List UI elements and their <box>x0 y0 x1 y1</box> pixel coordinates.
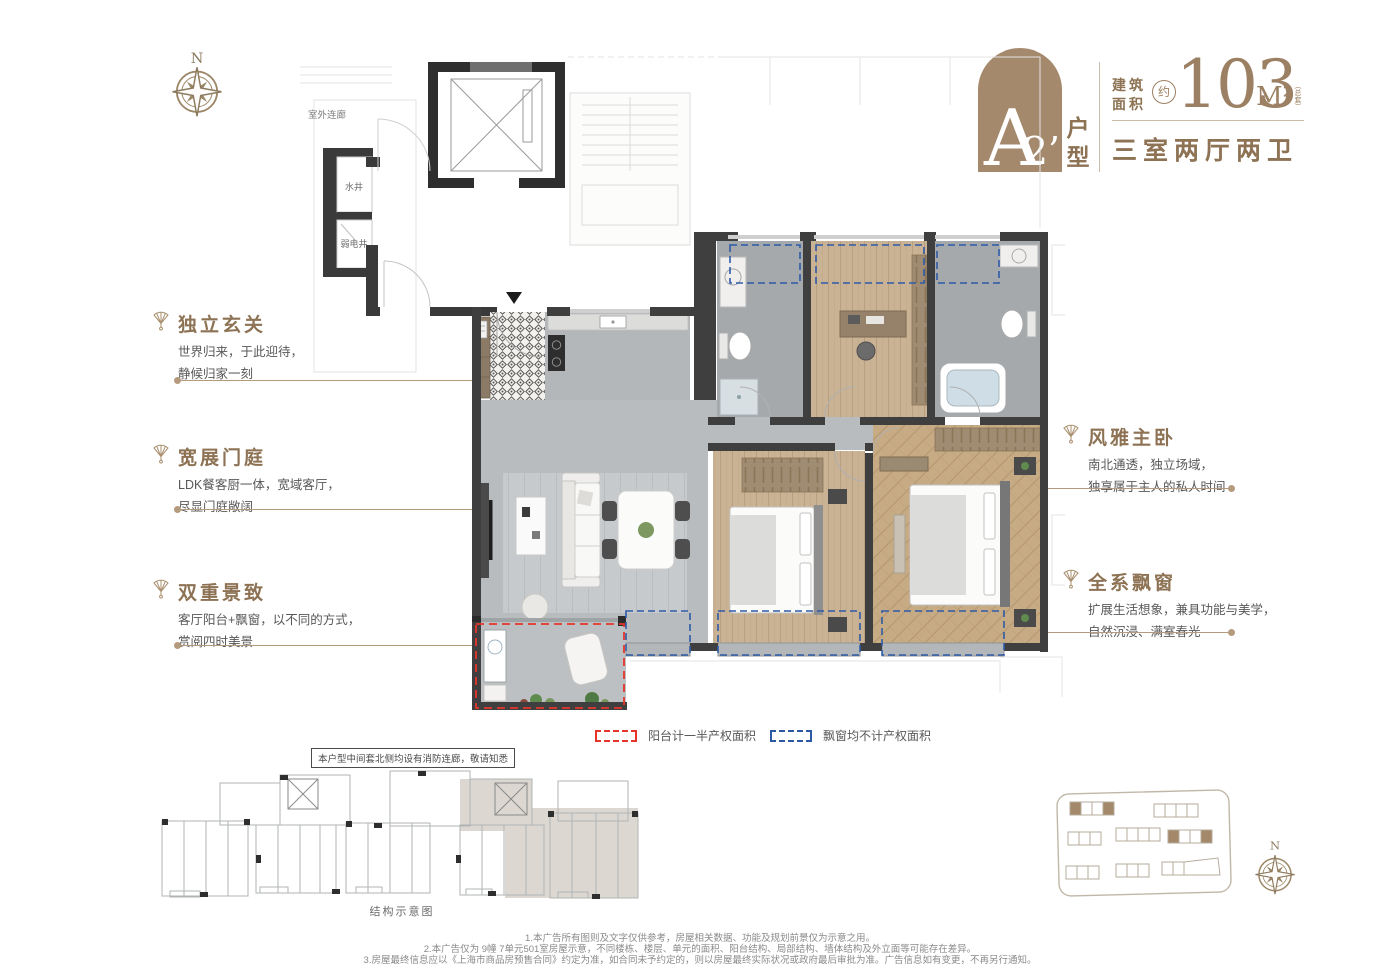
headboard <box>1000 481 1010 607</box>
fan-icon <box>150 443 172 465</box>
annotation-text: 南北通透，独立场域， <box>1088 454 1213 473</box>
sideboard <box>516 497 546 555</box>
foyer-floor <box>490 312 545 400</box>
washer <box>484 630 506 682</box>
wardrobe <box>935 428 1040 451</box>
floorplan-poster: N A 2’ 户型 建筑 面积 约 103 M² （总套） 三室两厅两卫 独 <box>0 0 1400 965</box>
elevator-core <box>428 62 565 188</box>
tv-wall <box>481 483 489 578</box>
leader-dot <box>1228 629 1235 636</box>
annotation-text: 扩展生活想象，兼具功能与美学， <box>1088 599 1276 618</box>
header-rule <box>1112 120 1304 121</box>
area-label: 建筑 面积 <box>1112 76 1146 114</box>
leader-dot <box>174 642 181 649</box>
compass-n-label: N <box>1270 838 1280 852</box>
tv <box>489 500 493 560</box>
annotation-title: 双重景致 <box>178 578 266 605</box>
legend-blue-swatch <box>770 730 812 742</box>
area-unit: M² <box>1256 82 1293 112</box>
pouf <box>522 594 548 620</box>
leader-dot <box>174 506 181 513</box>
balcony-door <box>481 618 618 622</box>
compass-n-label: N <box>191 51 204 67</box>
annotation-text: 自然沉浸、满室春光 <box>1088 621 1201 640</box>
nightstand <box>828 617 847 632</box>
annotation-title: 独立玄关 <box>178 310 266 337</box>
area-note: （总套） <box>1292 82 1302 110</box>
annotation-text: 赏阅四时美景 <box>178 631 253 650</box>
bookshelf <box>912 255 927 405</box>
utility-shafts: 水井 弱电井 <box>323 148 373 277</box>
entry-arrow <box>506 292 522 304</box>
dresser <box>880 457 928 471</box>
header-divider <box>1099 62 1100 172</box>
site-plan <box>1050 786 1240 906</box>
wardrobe <box>742 458 823 492</box>
fan-icon <box>150 578 172 600</box>
legend-label: 阳台计一半产权面积 <box>648 727 756 744</box>
headboard <box>814 505 823 615</box>
annotation-title: 风雅主卧 <box>1088 423 1176 450</box>
bed-bench <box>894 515 905 573</box>
layout-description: 三室两厅两卫 <box>1112 131 1298 167</box>
legend-balcony: 阳台计一半产权面积 <box>595 727 756 744</box>
fan-icon <box>150 310 172 332</box>
compass-north-topleft: N <box>166 50 228 122</box>
annotation-text: 世界归来，于此迎待， <box>178 341 303 360</box>
structure-diagram <box>160 763 640 903</box>
annotation-text: 尽显门庭敞阔 <box>178 496 253 515</box>
stairwell <box>570 93 690 245</box>
sofa <box>562 473 600 587</box>
annotation-text: 独享属于主人的私人时间 <box>1088 476 1226 495</box>
bay-floor <box>626 643 690 656</box>
unit-suffix: 户型 <box>1064 116 1092 178</box>
compass-north-bottomright: N <box>1252 838 1298 902</box>
bay-floor <box>718 643 860 656</box>
desk-chair <box>857 342 875 360</box>
bay-floor <box>882 643 1004 656</box>
structure-caption: 结构示意图 <box>322 903 482 919</box>
approx-circle: 约 <box>1152 80 1176 104</box>
legend-baywindow: 飘窗均不计产权面积 <box>770 727 931 744</box>
floorplan-drawing: 室外连廊 水井 弱电井 <box>300 45 1065 725</box>
outdoor-corridor-label: 室外连廊 <box>308 109 347 121</box>
leader-dot <box>1228 485 1235 492</box>
nightstand <box>828 489 847 504</box>
electrical-shaft-label: 弱电井 <box>340 238 367 249</box>
legend-label: 飘窗均不计产权面积 <box>823 727 931 744</box>
annotation-title: 宽展门庭 <box>178 443 266 470</box>
water-shaft-label: 水井 <box>345 181 363 192</box>
legend-red-swatch <box>595 730 637 742</box>
leader-dot <box>174 377 181 384</box>
disclaimer-line: 3.房屋最终信息应以《上海市商品房预售合同》约定为准，如合同未予约定的，则以房屋… <box>0 952 1400 965</box>
annotation-title: 全系飘窗 <box>1088 568 1176 595</box>
